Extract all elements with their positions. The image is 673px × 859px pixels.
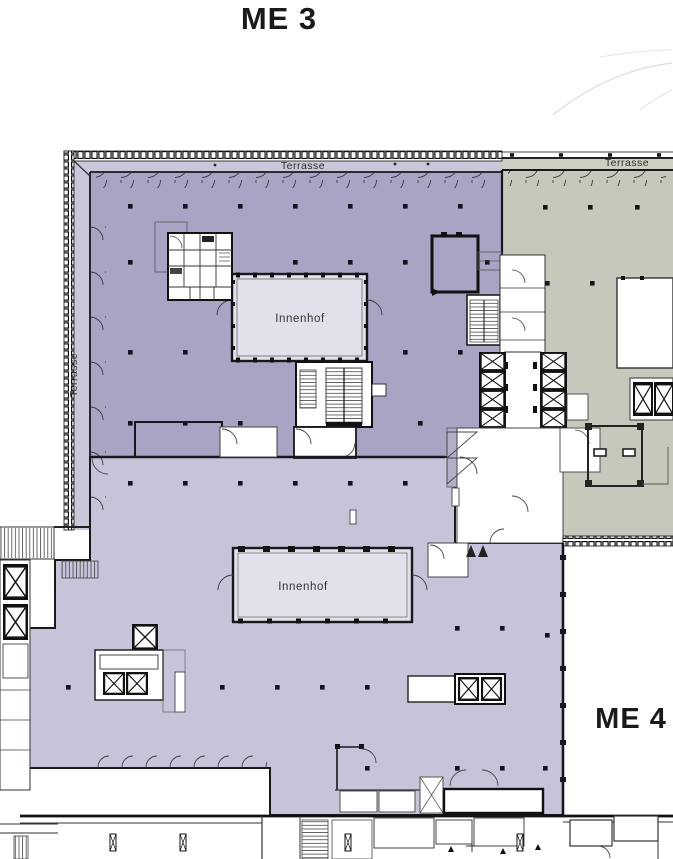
elevator-bank-center (480, 352, 565, 428)
floor-plan-page: Innenhof Innenhof (0, 0, 673, 859)
elevator-icon (4, 606, 27, 638)
elevator-icon (4, 566, 27, 598)
elevator-icon (480, 410, 504, 427)
terrasse-label-top-me4: Terrasse (605, 157, 649, 169)
elevator-icon (541, 391, 565, 408)
arcs-south-west (85, 754, 267, 768)
courtyard-lower: Innenhof (218, 548, 427, 622)
stair-flight (62, 561, 98, 578)
me4-service-room (617, 278, 673, 368)
elevator-icon (482, 678, 501, 700)
arcs-north-me4 (508, 171, 666, 186)
corridor-room (220, 427, 277, 457)
elevator-icon (480, 353, 504, 370)
elevator-icon (133, 625, 156, 648)
terrasse-label-top-me3: Terrasse (281, 160, 325, 172)
terrace-dot (394, 163, 397, 166)
courtyard-lower-label: Innenhof (278, 581, 328, 593)
door-arc (598, 846, 610, 858)
junction-room (428, 543, 468, 577)
arcs-north-me3 (96, 173, 496, 188)
me4-south-facade-hatch (563, 536, 673, 546)
terrasse-label-left: Terrasse (68, 353, 80, 397)
door-leaf (448, 846, 454, 852)
terrace-rail-left (64, 151, 74, 530)
unit-title-me3: ME 3 (241, 1, 317, 36)
me4-south-edge (563, 536, 673, 816)
arcs-west-me3 (91, 196, 106, 526)
service-rooms (500, 255, 545, 368)
stair-lobby-room (294, 427, 356, 458)
elevator-icon (459, 678, 478, 700)
stair-flight (300, 370, 316, 408)
stair-flight (302, 820, 328, 859)
elevator-icon (104, 673, 124, 694)
courtyard-upper: Innenhof (217, 274, 382, 361)
street-strip (0, 816, 673, 859)
elevator-icon (541, 353, 565, 370)
terrace-dot (214, 164, 217, 167)
thick-wall-room (444, 789, 543, 813)
terrace-strip-left-me3 (74, 161, 90, 530)
elevator-icon (480, 372, 504, 389)
terrace-dot (427, 163, 430, 166)
elevator-icon (634, 384, 652, 415)
stair-flight (1, 528, 53, 558)
floor-plan-drawing: Innenhof Innenhof (0, 0, 673, 859)
elevator-core-south-center (408, 674, 505, 704)
zone-fills (22, 158, 673, 815)
elevator-icon (541, 372, 565, 389)
courtyard-upper-label: Innenhof (275, 313, 325, 325)
unit-label-me4: ME 4 (595, 703, 667, 735)
elevator-icon (480, 391, 504, 408)
elevator-icon (541, 410, 565, 427)
elevator-icon (655, 384, 673, 415)
door-leaf (500, 848, 506, 854)
door-leaf (535, 844, 541, 850)
faint-sketch-lines (553, 50, 672, 115)
elevator-icon (127, 673, 147, 694)
